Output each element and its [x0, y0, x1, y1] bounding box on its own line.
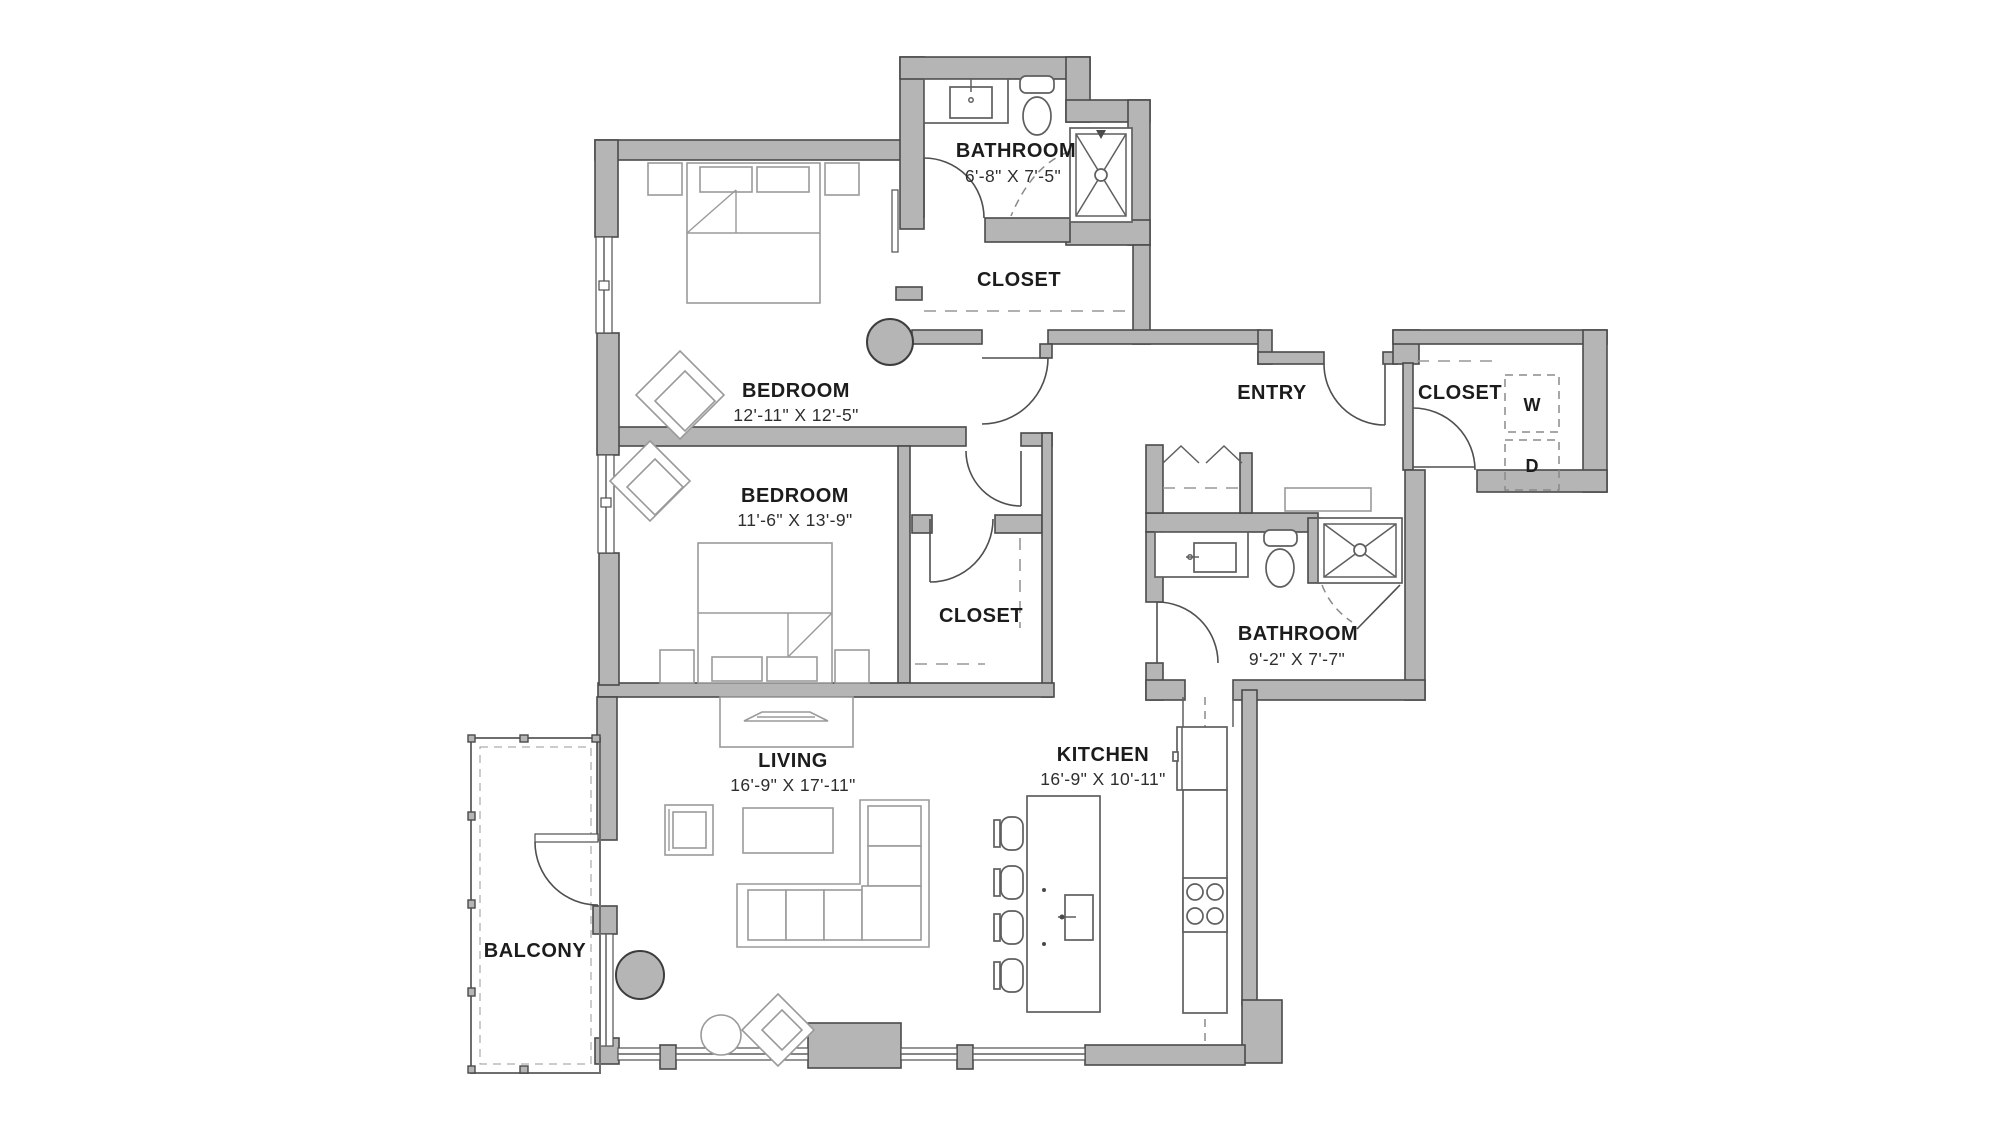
- corner-chair: [636, 351, 724, 439]
- bar-stool: [994, 911, 1023, 944]
- room-dims-bedroom-1: 12'-11" X 12'-5": [733, 405, 858, 425]
- room-label-entry: ENTRY: [1237, 382, 1307, 404]
- nightstand: [660, 650, 694, 683]
- corner-chair: [610, 441, 690, 521]
- balcony-door: [535, 834, 598, 905]
- pillow: [712, 657, 762, 681]
- bifold-closet-doors: [1163, 446, 1242, 463]
- nightstand: [648, 163, 682, 195]
- room-label-living: LIVING: [758, 750, 828, 772]
- bedroom2-furniture: [610, 441, 869, 683]
- hall-door: [982, 358, 1048, 424]
- nightstand: [825, 163, 859, 195]
- nightstand: [835, 650, 869, 683]
- toilet-fixture: [1264, 530, 1297, 587]
- room-label-bedroom-1: BEDROOM: [742, 380, 850, 402]
- shower-fixture: [1070, 128, 1132, 222]
- toilet-fixture: [1020, 76, 1054, 135]
- balcony-rail: [468, 735, 600, 1073]
- pillow: [700, 167, 752, 192]
- coffee-table: [743, 808, 833, 853]
- round-column: [867, 319, 913, 365]
- dryer-label: D: [1526, 456, 1539, 476]
- room-label-bathroom-top: BATHROOM: [956, 140, 1076, 162]
- room-label-kitchen: KITCHEN: [1057, 744, 1149, 766]
- room-dims-bedroom-2: 11'-6" X 13'-9": [737, 510, 852, 530]
- armchair: [665, 805, 713, 855]
- room-label-bathroom-right: BATHROOM: [1238, 623, 1358, 645]
- refrigerator: [1173, 697, 1233, 790]
- room-label-closet-bedroom2: CLOSET: [939, 605, 1023, 627]
- round-column: [616, 951, 664, 999]
- room-label-bedroom-2: BEDROOM: [741, 485, 849, 507]
- bar-stool: [994, 817, 1023, 850]
- washer-label: W: [1524, 395, 1541, 415]
- shower-fixture: [1318, 518, 1402, 583]
- media-console: [720, 697, 853, 747]
- room-dims-living: 16'-9" X 17'-11": [730, 775, 855, 795]
- floorplan-drawing: BATHROOM 6'-8" X 7'-5" CLOSET BEDROOM 12…: [0, 0, 2000, 1126]
- side-table: [701, 1015, 741, 1055]
- room-dims-bathroom-right: 9'-2" X 7'-7": [1249, 649, 1345, 669]
- pillow: [757, 167, 809, 192]
- room-label-closet-top: CLOSET: [977, 269, 1061, 291]
- kitchen-island: [1027, 796, 1100, 1012]
- bathroom-right-door: [1157, 602, 1218, 663]
- closet-bedroom2-door: [930, 519, 993, 582]
- pillow: [767, 657, 817, 681]
- sink-fixture: [1186, 543, 1236, 572]
- console-table: [1285, 488, 1371, 511]
- floorplan-page: BATHROOM 6'-8" X 7'-5" CLOSET BEDROOM 12…: [0, 0, 2000, 1126]
- cooktop: [1183, 878, 1227, 932]
- entry-door: [1324, 364, 1385, 425]
- bar-stool: [994, 866, 1023, 899]
- room-label-balcony: BALCONY: [484, 940, 587, 962]
- bedroom2-door: [966, 451, 1021, 506]
- laundry-closet-door: [1413, 408, 1475, 470]
- room-label-closet-laundry: CLOSET: [1418, 382, 1502, 404]
- room-dims-bathroom-top: 6'-8" X 7'-5": [965, 166, 1061, 186]
- bar-stool: [994, 959, 1023, 992]
- room-dims-kitchen: 16'-9" X 10'-11": [1040, 769, 1165, 789]
